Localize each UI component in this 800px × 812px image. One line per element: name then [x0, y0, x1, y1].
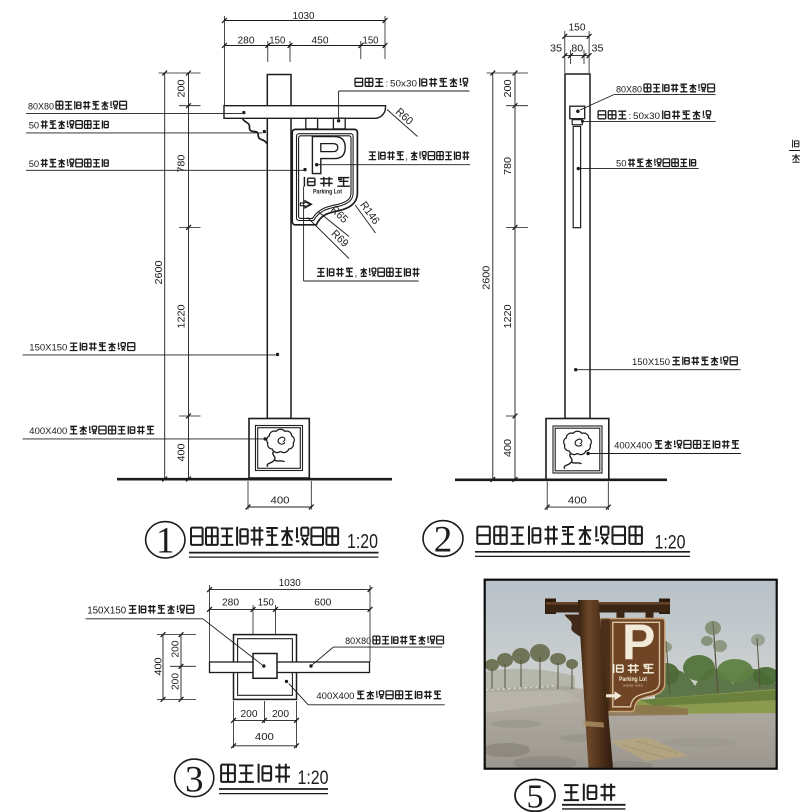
svg-text:280: 280: [222, 598, 239, 609]
svg-text:5: 5: [527, 779, 544, 812]
svg-text:450: 450: [312, 36, 329, 47]
svg-text:200: 200: [503, 79, 514, 97]
svg-text:200: 200: [171, 640, 182, 658]
svg-text:400: 400: [503, 439, 514, 457]
svg-text:3: 3: [185, 760, 204, 801]
svg-text:35: 35: [550, 44, 562, 55]
svg-text:1:20: 1:20: [298, 768, 329, 789]
svg-text:50x30: 50x30: [390, 79, 417, 90]
svg-text:600: 600: [314, 598, 331, 609]
svg-text:,: ,: [405, 152, 408, 163]
svg-text:200: 200: [177, 79, 188, 97]
svg-text:1:20: 1:20: [347, 531, 378, 553]
svg-text:1220: 1220: [177, 304, 188, 328]
svg-text:400: 400: [271, 495, 290, 507]
svg-text:150: 150: [269, 36, 285, 47]
svg-text:Parking Lot: Parking Lot: [313, 188, 342, 195]
svg-text:150: 150: [258, 598, 274, 609]
svg-text:80X80: 80X80: [616, 84, 642, 95]
svg-text:780: 780: [503, 157, 514, 175]
svg-text:1:20: 1:20: [655, 533, 686, 554]
svg-text:2600: 2600: [154, 260, 165, 284]
svg-text:50: 50: [616, 159, 627, 170]
svg-text:400X400: 400X400: [29, 426, 67, 437]
svg-text:150X150: 150X150: [87, 606, 127, 617]
svg-text:P: P: [622, 614, 655, 670]
svg-text:35: 35: [592, 44, 604, 55]
svg-text:2600: 2600: [482, 265, 493, 289]
svg-text:400: 400: [255, 731, 274, 743]
svg-text:200: 200: [171, 672, 182, 690]
svg-text:50: 50: [29, 159, 40, 170]
svg-text:80: 80: [571, 44, 583, 55]
svg-text:2: 2: [434, 520, 453, 561]
svg-text:280: 280: [238, 36, 255, 47]
svg-text:400: 400: [154, 657, 165, 676]
svg-text:150: 150: [569, 23, 586, 34]
svg-text:150X150: 150X150: [29, 343, 67, 354]
svg-text:1030: 1030: [279, 577, 301, 589]
svg-text:150: 150: [363, 36, 379, 47]
svg-text::: :: [629, 111, 632, 122]
svg-text:200: 200: [241, 709, 258, 720]
svg-text:80X80: 80X80: [345, 636, 371, 647]
svg-text:,: ,: [355, 268, 358, 279]
svg-text:400: 400: [177, 443, 188, 461]
svg-text:400: 400: [568, 495, 587, 507]
svg-text:400X400: 400X400: [614, 440, 652, 451]
svg-text:1030: 1030: [293, 10, 315, 22]
svg-text:xxxx xxx: xxxx xxx: [623, 683, 643, 688]
svg-text:1220: 1220: [503, 304, 514, 328]
svg-text:150X150: 150X150: [632, 357, 670, 368]
svg-text:400X400: 400X400: [316, 691, 354, 702]
svg-text:200: 200: [272, 709, 289, 720]
svg-text::: :: [386, 79, 389, 90]
svg-text:50x30: 50x30: [633, 111, 660, 122]
svg-text:780: 780: [177, 154, 188, 172]
svg-text:50: 50: [29, 120, 40, 131]
svg-text:80X80: 80X80: [28, 101, 54, 112]
svg-text:1: 1: [156, 521, 175, 562]
